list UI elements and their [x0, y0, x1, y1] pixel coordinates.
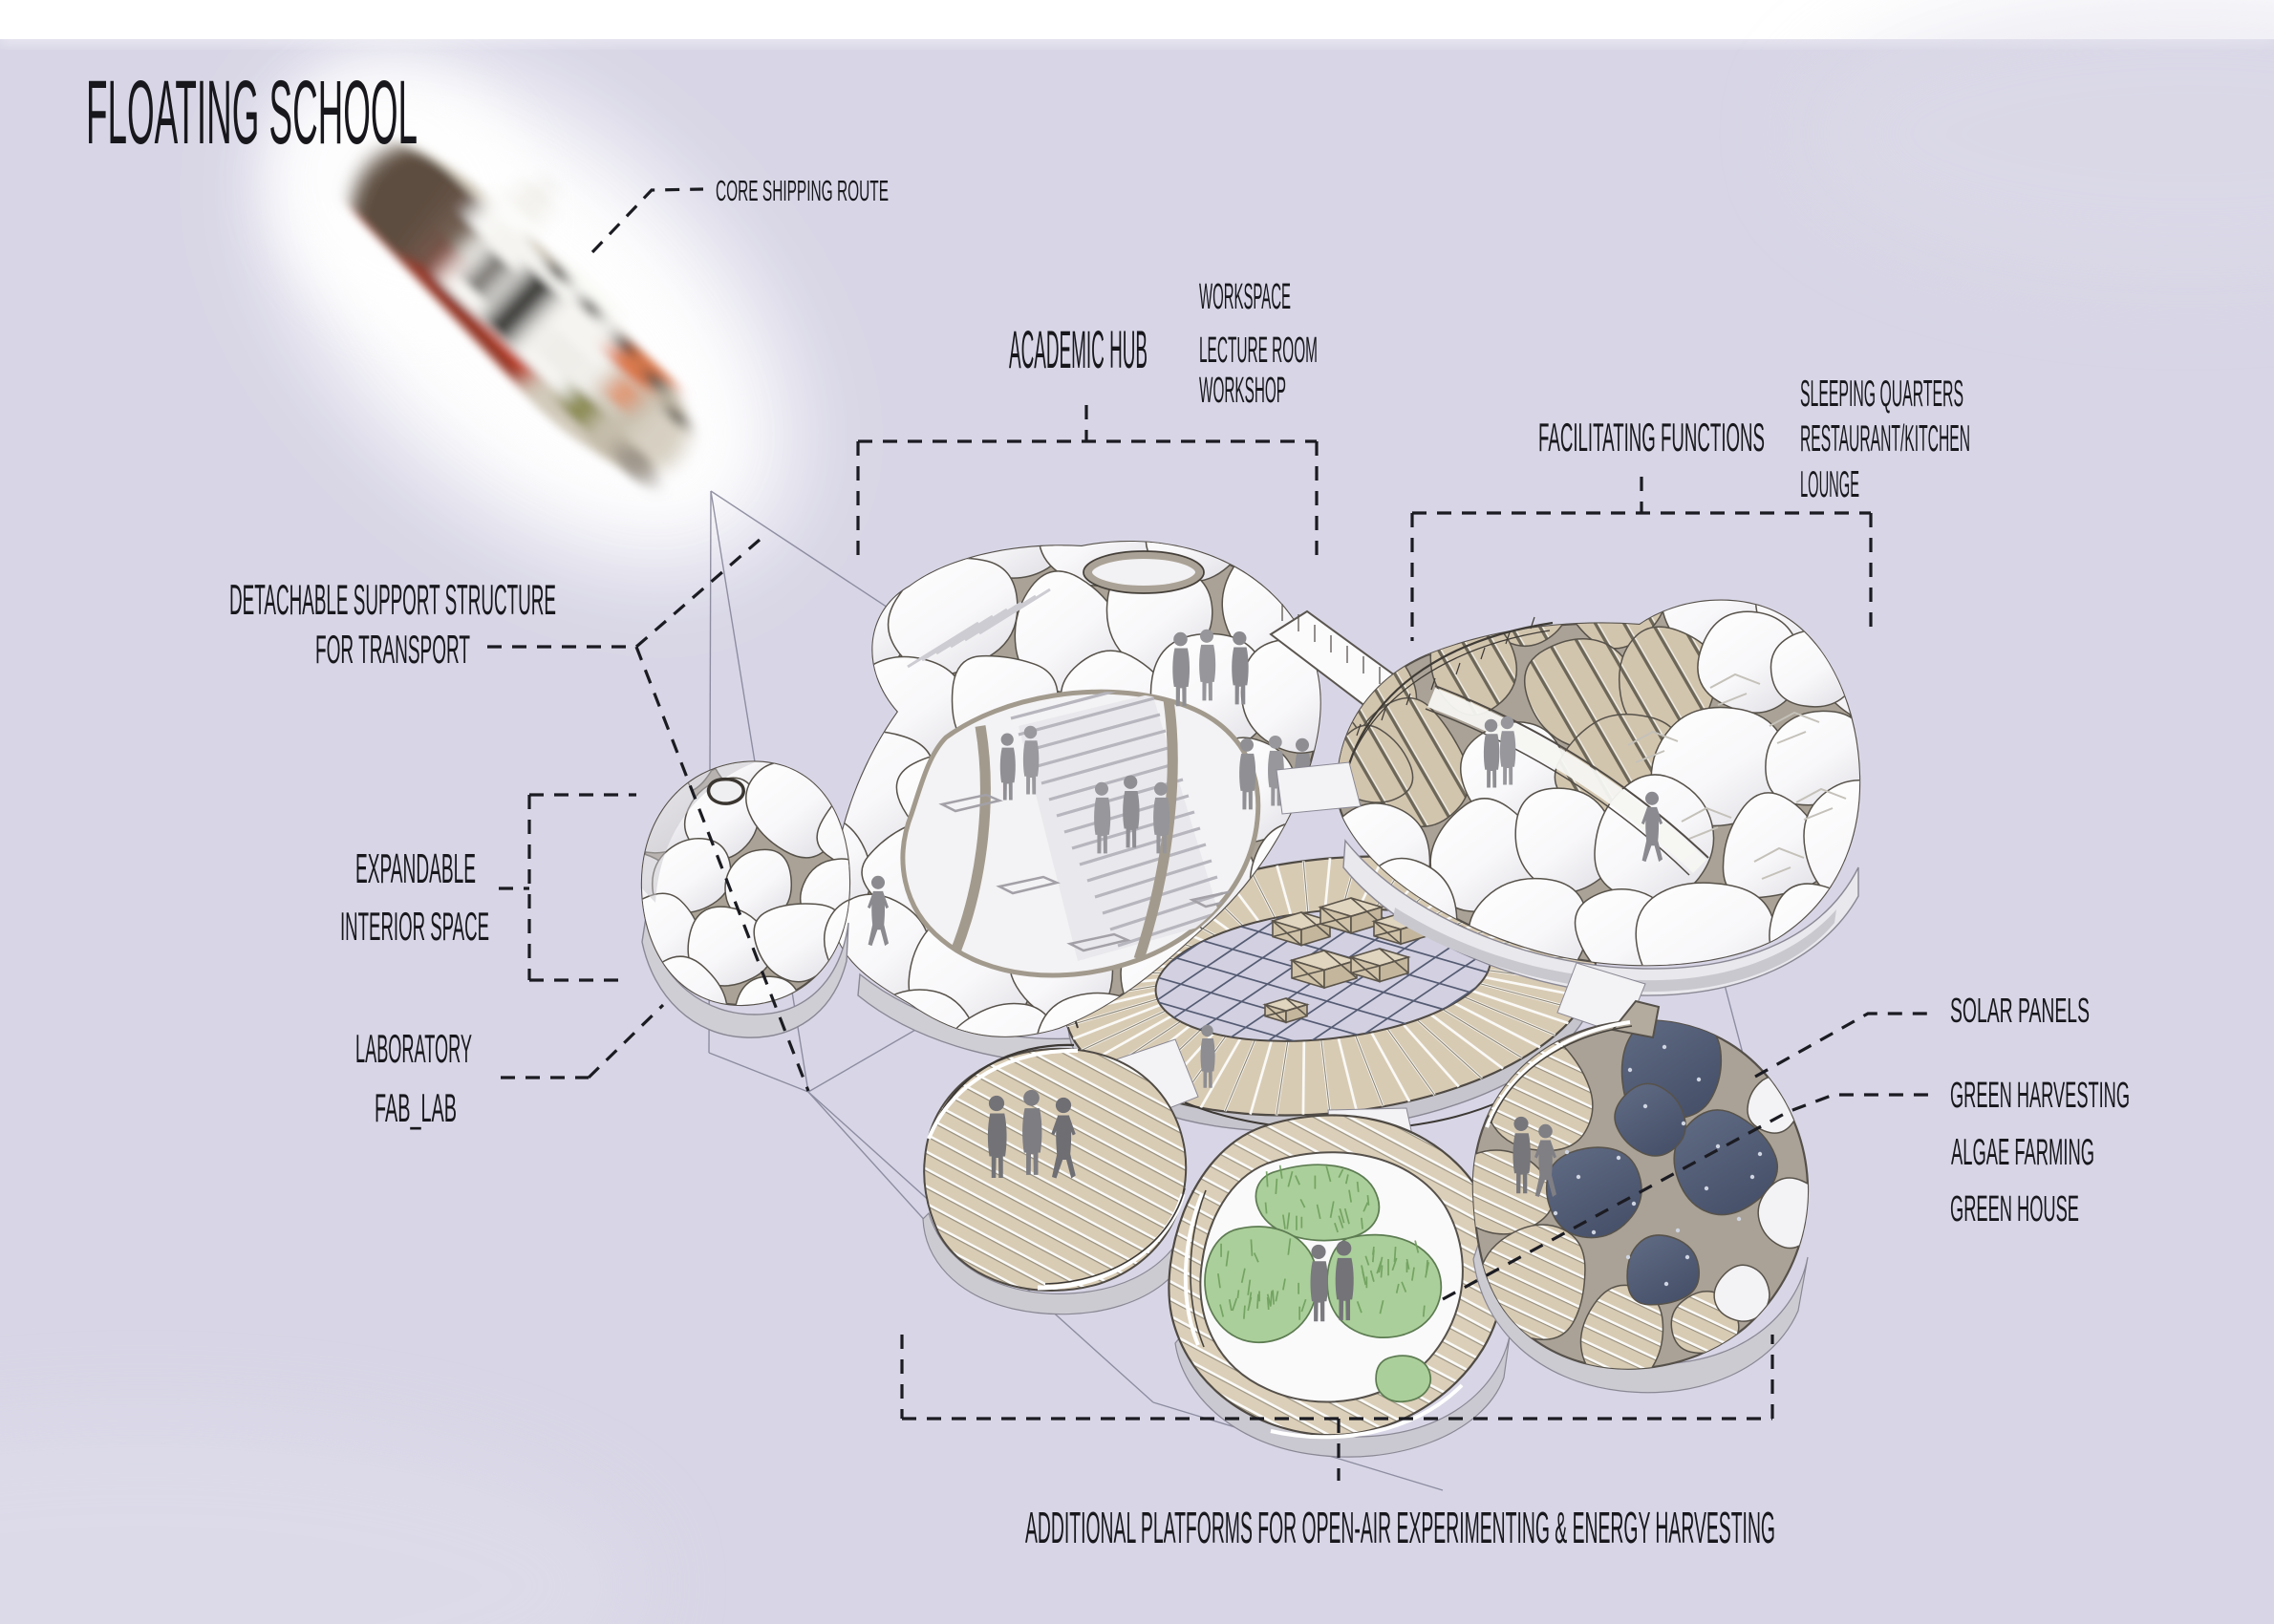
svg-text:LABORATORY: LABORATORY [355, 1026, 472, 1071]
svg-text:RESTAURANT/KITCHEN: RESTAURANT/KITCHEN [1800, 418, 1970, 459]
svg-text:ADDITIONAL PLATFORMS FOR OPEN-: ADDITIONAL PLATFORMS FOR OPEN-AIR EXPERI… [1025, 1503, 1775, 1552]
svg-text:FAB_LAB: FAB_LAB [375, 1085, 457, 1130]
svg-text:LECTURE ROOM: LECTURE ROOM [1199, 330, 1318, 370]
svg-text:EXPANDABLE: EXPANDABLE [355, 846, 476, 892]
svg-text:SOLAR PANELS: SOLAR PANELS [1950, 991, 2090, 1030]
svg-text:INTERIOR SPACE: INTERIOR SPACE [340, 904, 489, 949]
svg-text:FACILITATING FUNCTIONS: FACILITATING FUNCTIONS [1538, 415, 1765, 459]
svg-text:LOUNGE: LOUNGE [1800, 464, 1859, 505]
svg-text:FOR TRANSPORT: FOR TRANSPORT [315, 627, 470, 672]
svg-text:DETACHABLE SUPPORT STRUCTURE: DETACHABLE SUPPORT STRUCTURE [229, 577, 556, 624]
svg-text:CORE SHIPPING ROUTE: CORE SHIPPING ROUTE [716, 174, 889, 207]
svg-text:GREEN HOUSE: GREEN HOUSE [1950, 1188, 2079, 1229]
svg-text:SLEEPING QUARTERS: SLEEPING QUARTERS [1800, 374, 1963, 415]
svg-text:WORKSHOP: WORKSHOP [1199, 370, 1286, 410]
svg-text:ACADEMIC HUB: ACADEMIC HUB [1009, 319, 1148, 379]
svg-text:WORKSPACE: WORKSPACE [1199, 276, 1291, 316]
svg-text:ALGAE FARMING: ALGAE FARMING [1951, 1132, 2094, 1173]
svg-text:FLOATING SCHOOL: FLOATING SCHOOL [86, 62, 418, 163]
svg-text:GREEN HARVESTING: GREEN HARVESTING [1950, 1075, 2130, 1115]
